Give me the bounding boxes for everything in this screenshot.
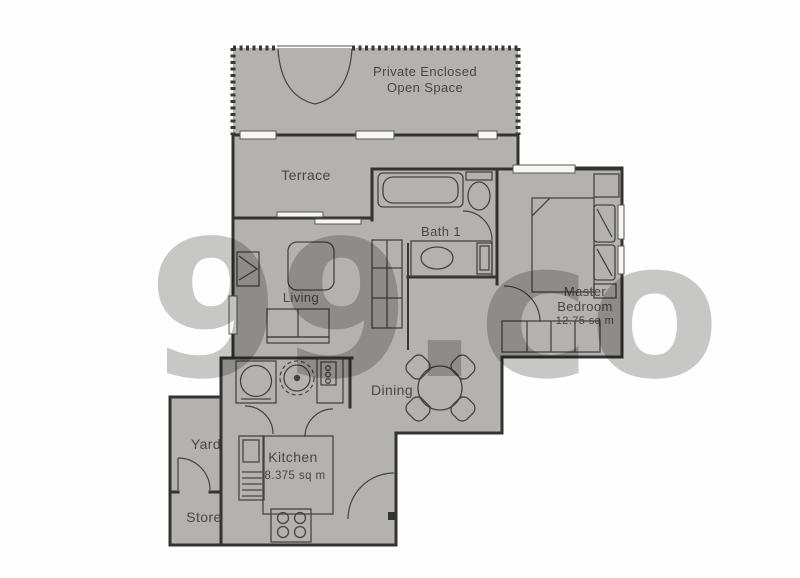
window-master-top	[513, 165, 575, 173]
label-private-open-space-1: Private Enclosed	[373, 64, 477, 79]
label-private-open-space-2: Open Space	[387, 80, 463, 95]
floor-plan: Private Enclosed Open Space Terrace Bath…	[0, 0, 800, 578]
floor-plan-page: Private Enclosed Open Space Terrace Bath…	[0, 0, 800, 578]
label-kitchen: Kitchen	[268, 449, 318, 465]
label-store: Store	[186, 509, 221, 525]
label-yard: Yard	[191, 436, 221, 452]
window-pos-1	[240, 131, 276, 139]
window-pos-3	[478, 131, 497, 139]
entry-door-jamb	[388, 512, 396, 520]
label-kitchen-area: 8.375 sq m	[265, 470, 326, 482]
watermark: 99.co	[148, 200, 718, 421]
label-terrace: Terrace	[281, 167, 330, 183]
window-pos-2	[356, 131, 394, 139]
